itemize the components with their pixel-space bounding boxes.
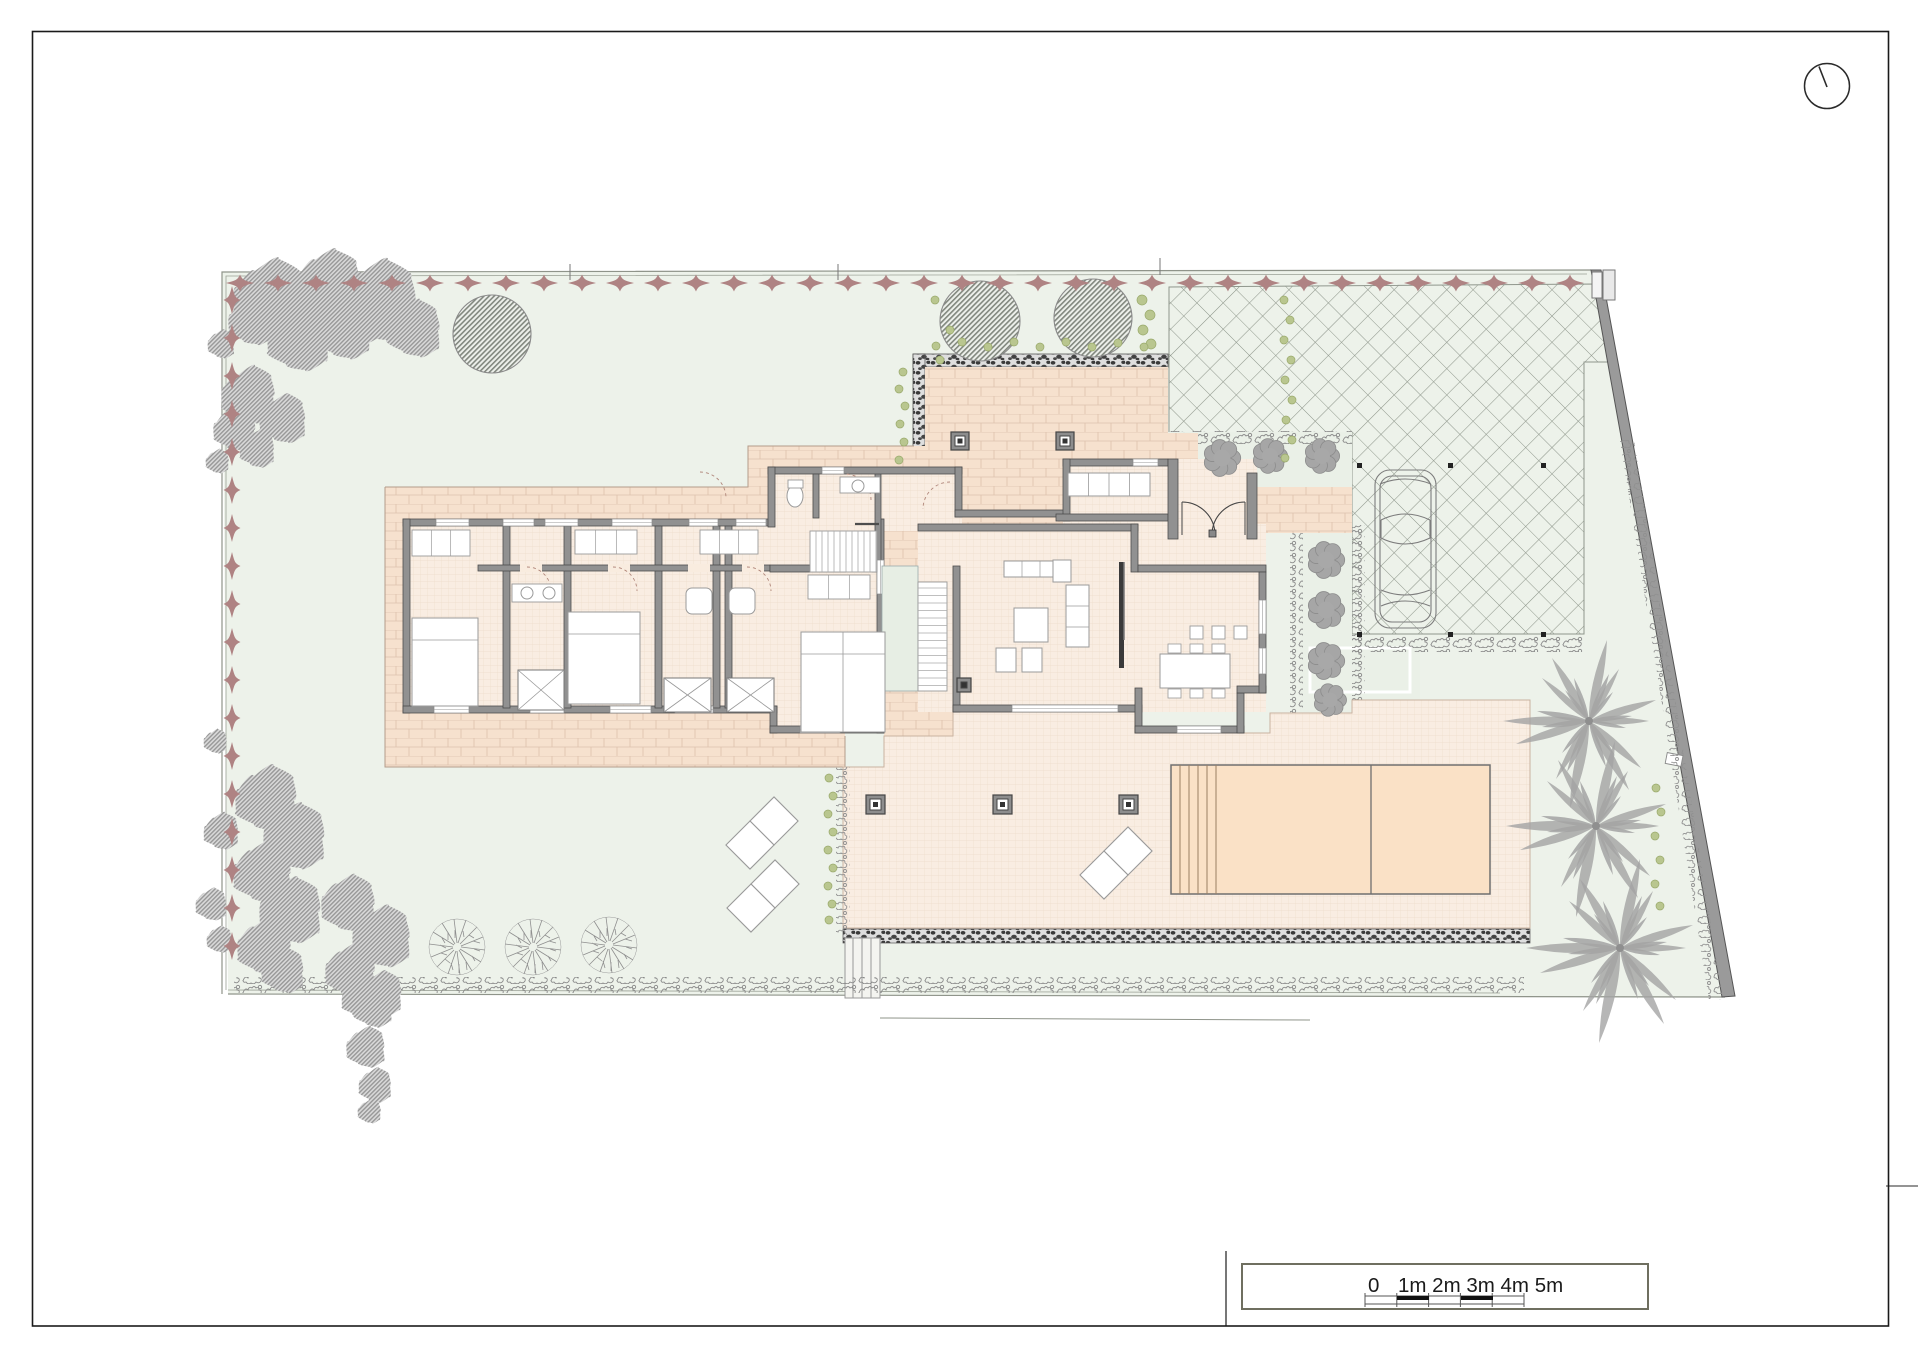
svg-text:1m 2m 3m 4m 5m: 1m 2m 3m 4m 5m	[1398, 1274, 1563, 1297]
svg-text:0: 0	[1368, 1274, 1379, 1297]
